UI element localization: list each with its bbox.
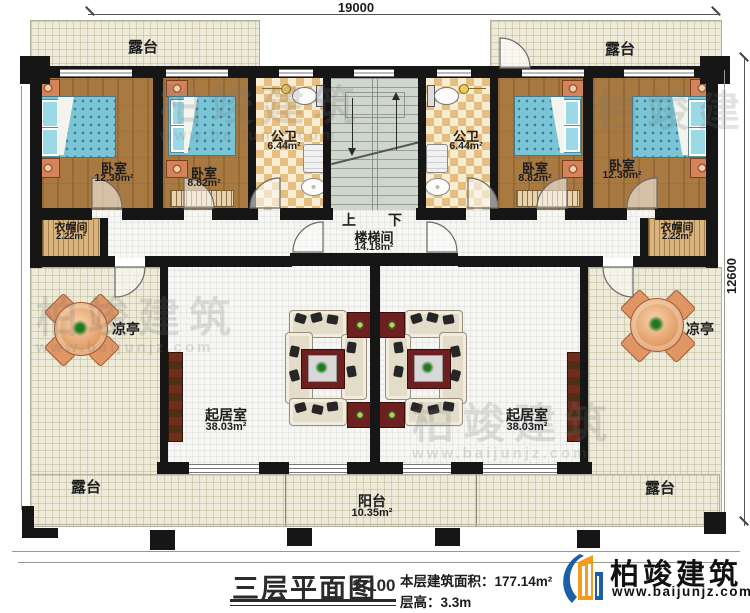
bed-pillow — [689, 100, 707, 128]
door-arc — [627, 178, 657, 208]
wall — [323, 66, 331, 218]
sofa-cushion — [346, 365, 357, 377]
sofa-cushion — [346, 341, 356, 353]
wall — [162, 256, 292, 267]
room-area-bedroom-r2: 8.82m² — [511, 172, 559, 184]
door-arc — [250, 178, 280, 208]
boundary-line — [724, 70, 725, 516]
room-area-bath-left: 6.44m² — [260, 140, 308, 152]
wall — [706, 66, 718, 268]
corner-post — [22, 528, 58, 538]
wall — [212, 208, 258, 220]
side-table — [379, 312, 405, 338]
tv-cabinet — [168, 352, 183, 442]
bed-pillow — [564, 126, 580, 152]
window — [60, 69, 132, 77]
room-label-terrace-top-left: 露台 — [123, 36, 163, 57]
wall — [580, 262, 588, 464]
window — [189, 464, 259, 473]
room-area-wic-left: 2.22m² — [50, 231, 92, 242]
sofa-cushion — [442, 401, 454, 411]
floorplan-canvas: 19000 12600 — [0, 0, 750, 613]
wall — [122, 208, 184, 220]
boundary-line — [21, 86, 22, 510]
bed-pillow — [41, 100, 59, 128]
sofa-cushion — [393, 341, 403, 353]
stair-arrowhead — [392, 92, 400, 100]
bed-pillow — [689, 128, 707, 156]
wall — [157, 462, 189, 474]
bed-sheet — [58, 97, 78, 155]
wall — [280, 208, 333, 220]
door-arc — [500, 38, 530, 68]
title-underline — [230, 599, 396, 602]
sofa-cushion — [442, 314, 454, 325]
door-arc — [115, 267, 145, 297]
window — [279, 69, 313, 77]
sofa-cushion — [393, 365, 404, 377]
wall — [370, 258, 380, 464]
room-label-terrace-top-right: 露台 — [600, 38, 640, 59]
window — [437, 69, 471, 77]
wall — [347, 462, 403, 474]
wall — [30, 66, 42, 268]
brand-logo-icon — [558, 550, 606, 608]
window — [403, 464, 451, 473]
wall — [153, 66, 163, 218]
faucet-knob — [459, 84, 469, 94]
window — [624, 69, 694, 77]
bed-pillow — [41, 128, 59, 156]
nightstand — [166, 80, 188, 97]
toilet-icon — [434, 87, 459, 105]
wall — [160, 262, 168, 464]
window — [354, 69, 394, 77]
door-arc — [468, 178, 498, 208]
wall — [458, 256, 588, 267]
door-arc — [293, 222, 323, 252]
toilet-icon — [292, 87, 317, 105]
wall — [565, 208, 627, 220]
pillar — [577, 530, 600, 548]
pillar — [287, 528, 312, 546]
bed-pillow — [564, 100, 580, 126]
door-arc — [603, 267, 633, 297]
dimension-line-right — [744, 58, 745, 526]
sofa-cushion — [326, 314, 338, 325]
nightstand — [562, 80, 584, 97]
room-label-pavilion-left: 凉亭 — [106, 319, 146, 339]
corner-post — [704, 512, 726, 534]
room-label-pavilion-right: 凉亭 — [680, 319, 720, 339]
wall — [100, 218, 108, 256]
faucet-knob — [281, 84, 291, 94]
pillar — [435, 528, 460, 546]
room-area-bedroom-l2: 8.82m² — [180, 177, 228, 189]
title-underline — [230, 605, 396, 606]
stair-direction-arrow — [396, 98, 397, 150]
floor-area-label: 本层建筑面积：177.14m² — [400, 570, 552, 590]
dimension-top-label: 19000 — [328, 0, 384, 15]
brand-website: www.baijunjz.com — [612, 584, 750, 599]
nightstand — [562, 160, 584, 178]
bed-sheet — [184, 97, 200, 153]
stair-direction-arrow — [352, 98, 353, 150]
room-area-living-left: 38.03m² — [201, 421, 251, 433]
window — [289, 464, 347, 473]
wall — [259, 462, 289, 474]
room-area-bath-right: 6.44m² — [442, 140, 490, 152]
wall — [490, 208, 537, 220]
plant-icon — [648, 316, 664, 332]
room-label-terrace-bottom-left: 露台 — [66, 476, 106, 497]
wall — [583, 66, 593, 218]
window — [483, 464, 557, 473]
wall — [451, 462, 483, 474]
door-arc — [427, 222, 457, 252]
sink-icon — [425, 178, 450, 196]
room-area-living-right: 38.03m² — [502, 421, 552, 433]
boundary-line — [30, 524, 718, 525]
bed-sheet — [548, 97, 564, 153]
plan-scale: 1:100 — [352, 576, 395, 596]
wall — [418, 66, 426, 218]
plant-icon — [421, 361, 434, 374]
room-label-terrace-bottom-right: 露台 — [640, 477, 680, 498]
wall — [416, 208, 466, 220]
room-area-balcony: 10.35m² — [346, 507, 398, 519]
side-table — [379, 402, 405, 428]
pillar — [150, 530, 175, 550]
plant-icon — [72, 320, 88, 336]
room-area-bedroom-l1: 12.30m² — [86, 172, 142, 184]
window — [166, 69, 228, 77]
dimension-right-label: 12600 — [724, 258, 739, 294]
wall — [588, 256, 603, 267]
floor-height-label: 层高：3.3m — [400, 591, 471, 611]
window — [522, 69, 584, 77]
room-area-stairwell: 14.18m² — [350, 241, 398, 253]
wall — [640, 218, 648, 256]
room-area-bedroom-r1: 12.30m² — [594, 169, 650, 181]
wall — [30, 256, 115, 267]
stair-arrowhead — [348, 148, 356, 156]
bed-sheet — [668, 97, 688, 155]
wall — [633, 256, 718, 267]
sofa-cushion — [326, 401, 338, 411]
wall — [557, 462, 592, 474]
dimension-line-top — [88, 14, 718, 15]
room-area-wic-right: 2.22m² — [656, 231, 698, 242]
plant-icon — [315, 361, 328, 374]
